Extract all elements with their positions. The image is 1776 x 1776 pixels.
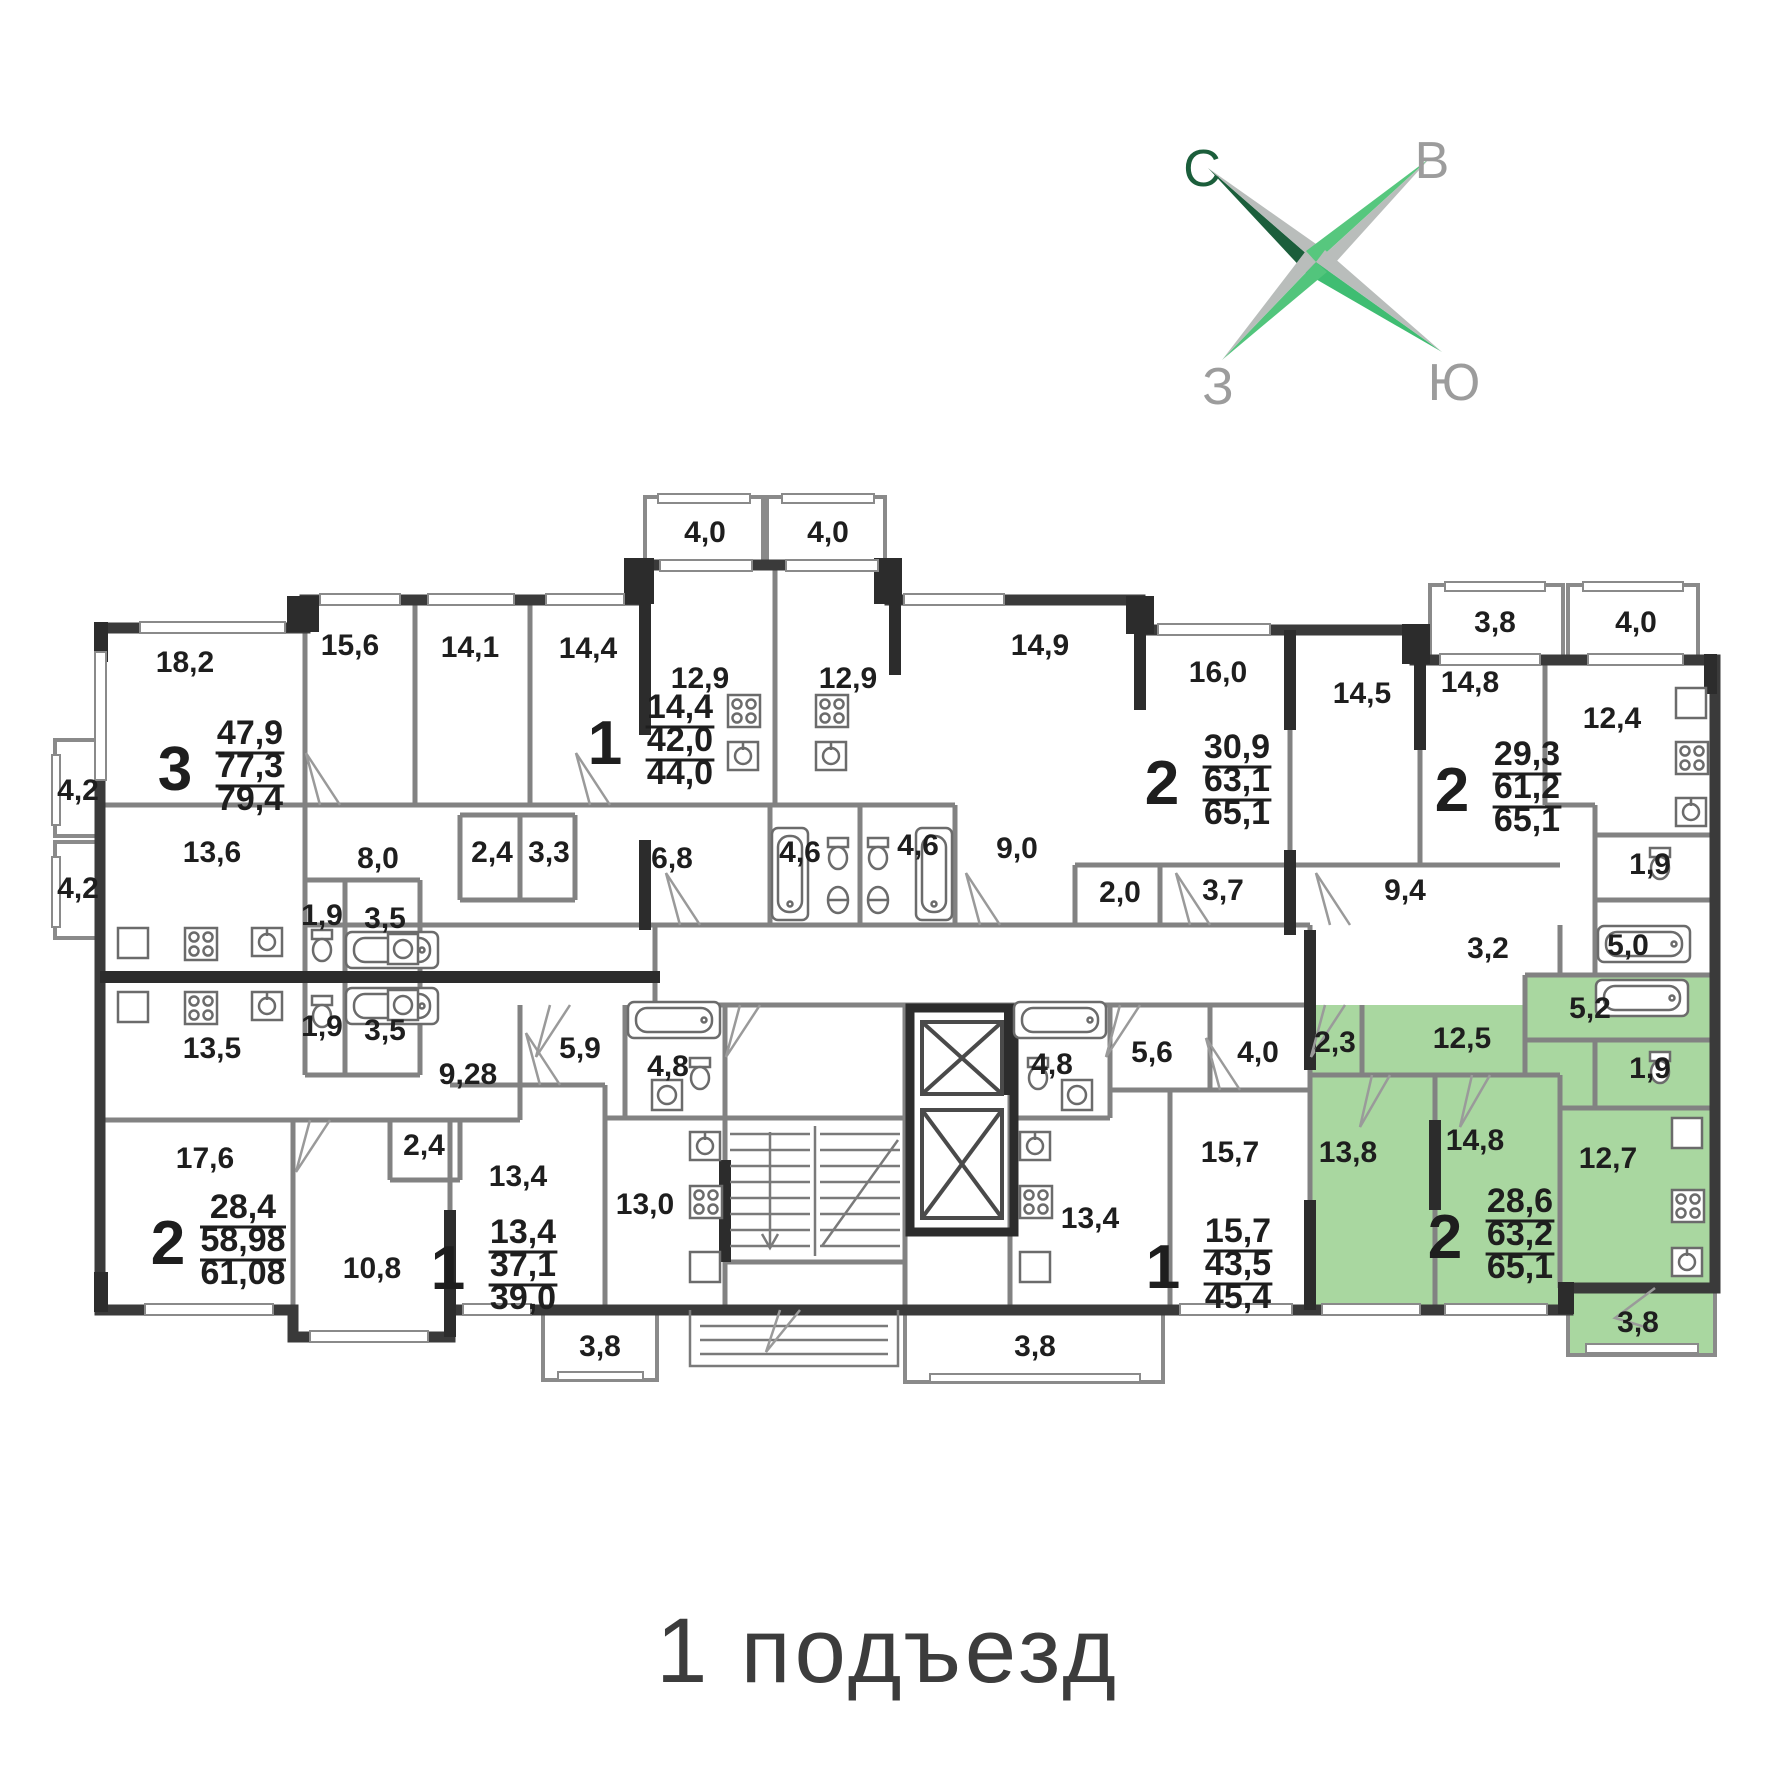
room-area-label: 3,5 xyxy=(364,1014,406,1047)
page-caption: 1 подъезд xyxy=(656,1600,1120,1702)
apartment-rooms-count: 1 xyxy=(431,1234,465,1303)
room-area-label: 18,2 xyxy=(156,646,214,679)
room-area-label: 2,3 xyxy=(1314,1026,1356,1059)
room-area-label: 13,4 xyxy=(489,1160,548,1193)
apartment-rooms-count: 1 xyxy=(588,709,622,778)
stairs xyxy=(730,1126,900,1256)
room-area-label: 3,3 xyxy=(528,836,570,869)
room-area-label: 14,8 xyxy=(1446,1124,1504,1157)
room-area-label: 4,2 xyxy=(57,872,99,905)
room-area-label: 14,8 xyxy=(1441,666,1499,699)
room-area-label: 14,5 xyxy=(1333,677,1391,710)
room-area-label: 9,0 xyxy=(996,832,1038,865)
room-area-label: 4,6 xyxy=(897,829,939,862)
room-area-label: 5,6 xyxy=(1131,1036,1173,1069)
entrance-porch xyxy=(690,1310,898,1366)
room-area-label: 5,9 xyxy=(559,1032,601,1065)
compass: С В З Ю xyxy=(1183,132,1480,416)
room-area-label: 14,9 xyxy=(1011,629,1069,662)
room-area-label: 4,8 xyxy=(1031,1048,1073,1081)
compass-label-east: В xyxy=(1415,132,1450,190)
room-area-label: 4,6 xyxy=(779,836,821,869)
room-area-label: 9,4 xyxy=(1384,874,1426,907)
compass-west-arm xyxy=(1222,262,1327,360)
room-area-label: 1,9 xyxy=(1629,848,1671,881)
room-area-label: 4,2 xyxy=(57,774,99,807)
floor-plan-page: С В З Ю 18,215,614,114,44,04,012,912,914… xyxy=(0,0,1776,1776)
room-area-label: 9,28 xyxy=(439,1058,497,1091)
apartment-rooms-count: 2 xyxy=(1435,756,1469,825)
room-area-label: 4,0 xyxy=(1615,606,1657,639)
room-area-label: 2,4 xyxy=(403,1129,445,1162)
room-area-label: 12,4 xyxy=(1583,702,1642,735)
room-area-label: 3,8 xyxy=(1617,1306,1659,1339)
room-area-label: 5,2 xyxy=(1569,992,1611,1025)
room-area-label: 2,0 xyxy=(1099,876,1141,909)
room-area-label: 12,9 xyxy=(819,662,877,695)
room-area-label: 12,5 xyxy=(1433,1022,1491,1055)
room-area-label: 10,8 xyxy=(343,1252,401,1285)
elevators xyxy=(910,1008,1014,1232)
room-area-label: 3,8 xyxy=(1014,1330,1056,1363)
compass-south-arm xyxy=(1307,262,1442,352)
room-area-label: 1,9 xyxy=(301,899,343,932)
room-area-label: 14,1 xyxy=(441,631,499,664)
room-area-label: 3,8 xyxy=(579,1330,621,1363)
compass-label-north: С xyxy=(1183,140,1221,198)
apartment-rooms-count: 2 xyxy=(1145,749,1179,818)
room-area-label: 12,7 xyxy=(1579,1142,1637,1175)
room-area-label: 3,5 xyxy=(364,902,406,935)
room-area-label: 17,6 xyxy=(176,1142,234,1175)
room-area-label: 4,8 xyxy=(647,1050,689,1083)
compass-label-west: З xyxy=(1202,358,1233,416)
room-area-label: 13,5 xyxy=(183,1032,241,1065)
apartment-rooms-count: 1 xyxy=(1146,1233,1180,1302)
room-area-label: 15,7 xyxy=(1201,1136,1259,1169)
compass-north-arm xyxy=(1208,168,1316,273)
room-area-label: 1,9 xyxy=(1629,1052,1671,1085)
room-area-label: 3,2 xyxy=(1467,932,1509,965)
room-area-label: 4,0 xyxy=(807,516,849,549)
apartment-rooms-count: 2 xyxy=(1428,1203,1462,1272)
room-area-label: 3,8 xyxy=(1474,606,1516,639)
compass-label-south: Ю xyxy=(1428,354,1481,412)
room-area-label: 16,0 xyxy=(1189,656,1247,689)
room-area-label: 14,4 xyxy=(559,632,618,665)
apartment-rooms-count: 2 xyxy=(151,1209,185,1278)
floor-plan: С В З Ю 18,215,614,114,44,04,012,912,914… xyxy=(0,0,1776,1776)
room-area-label: 13,6 xyxy=(183,836,241,869)
room-area-label: 5,0 xyxy=(1607,929,1649,962)
room-area-label: 2,4 xyxy=(471,836,513,869)
room-area-label: 4,0 xyxy=(1237,1036,1279,1069)
apartment-rooms-count: 3 xyxy=(158,735,192,804)
room-area-label: 13,4 xyxy=(1061,1202,1120,1235)
room-area-label: 4,0 xyxy=(684,516,726,549)
room-area-label: 6,8 xyxy=(651,842,693,875)
room-area-label: 13,8 xyxy=(1319,1136,1377,1169)
room-area-label: 1,9 xyxy=(301,1010,343,1043)
room-area-label: 8,0 xyxy=(357,842,399,875)
room-area-label: 15,6 xyxy=(321,629,379,662)
room-area-label: 3,7 xyxy=(1202,874,1244,907)
room-area-label: 13,0 xyxy=(616,1188,674,1221)
compass-east-arm xyxy=(1306,158,1430,262)
